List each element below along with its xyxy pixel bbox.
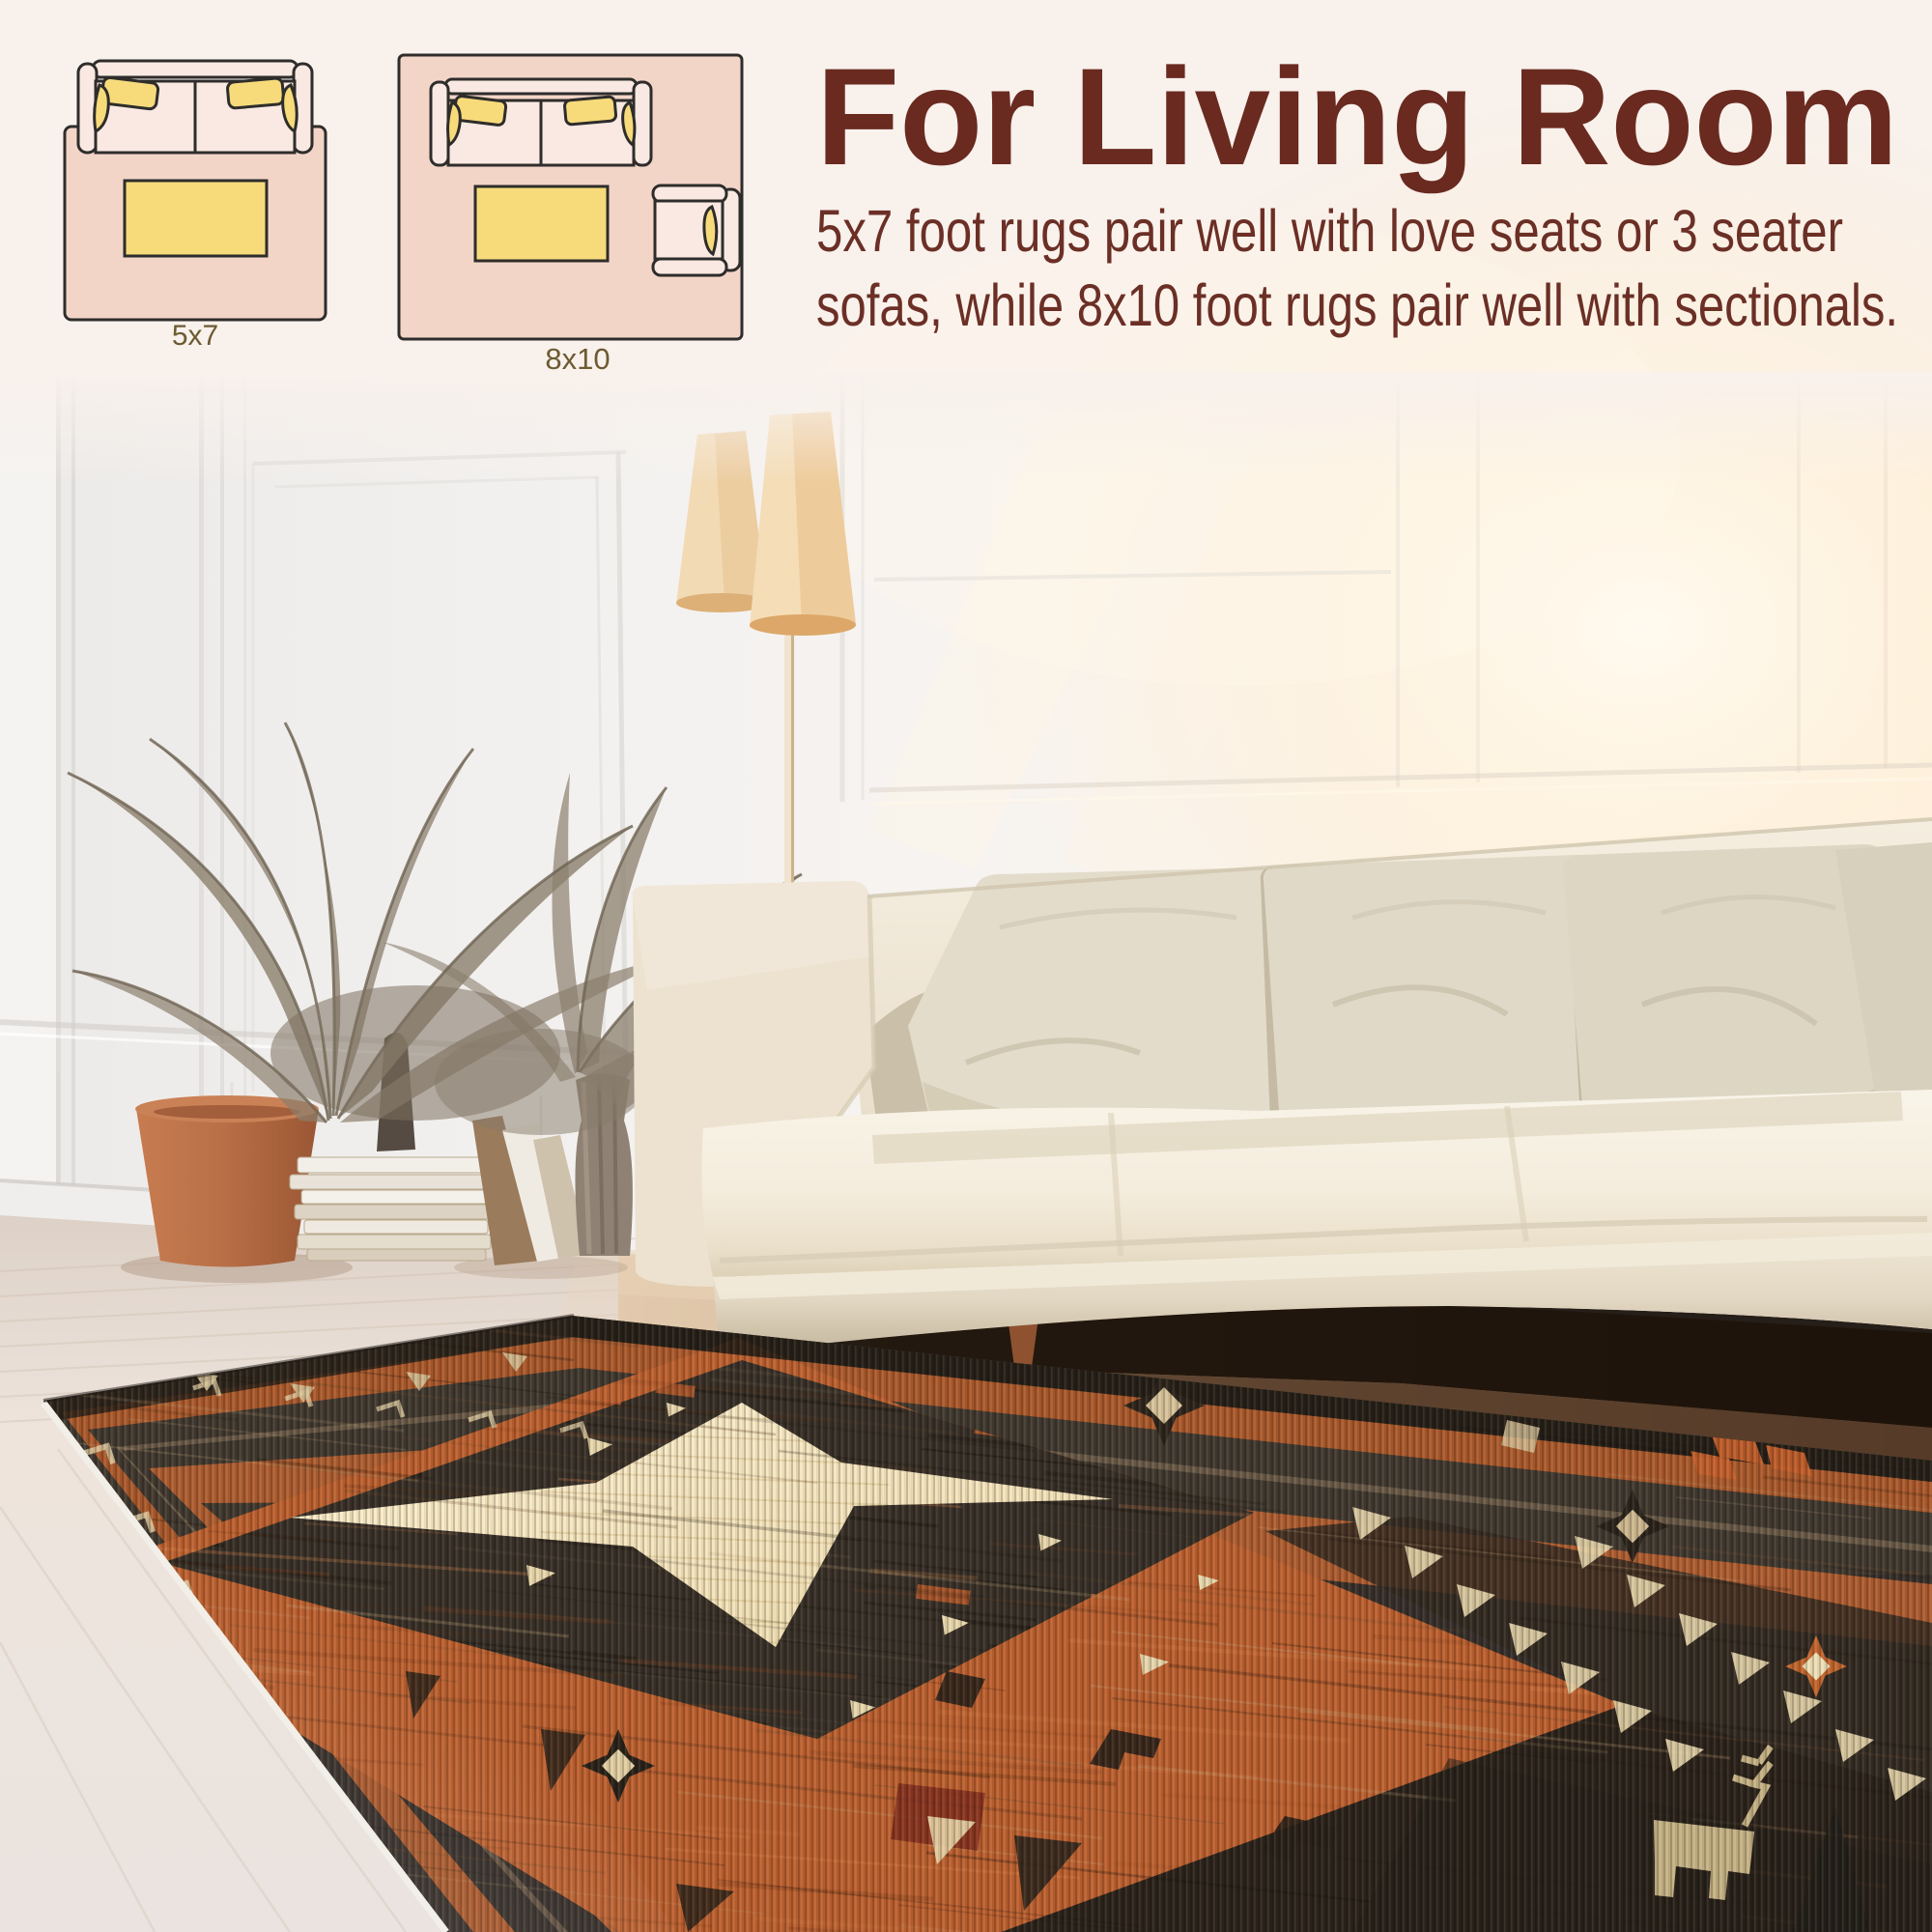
- svg-text:For Living Room: For Living Room: [816, 41, 1898, 194]
- svg-text:5x7: 5x7: [172, 320, 218, 352]
- svg-text:sofas, while 8x10 foot rugs pa: sofas, while 8x10 foot rugs pair well wi…: [816, 272, 1898, 338]
- svg-text:5x7 foot rugs pair well with l: 5x7 foot rugs pair well with love seats …: [816, 198, 1843, 264]
- svg-text:8x10: 8x10: [545, 342, 610, 376]
